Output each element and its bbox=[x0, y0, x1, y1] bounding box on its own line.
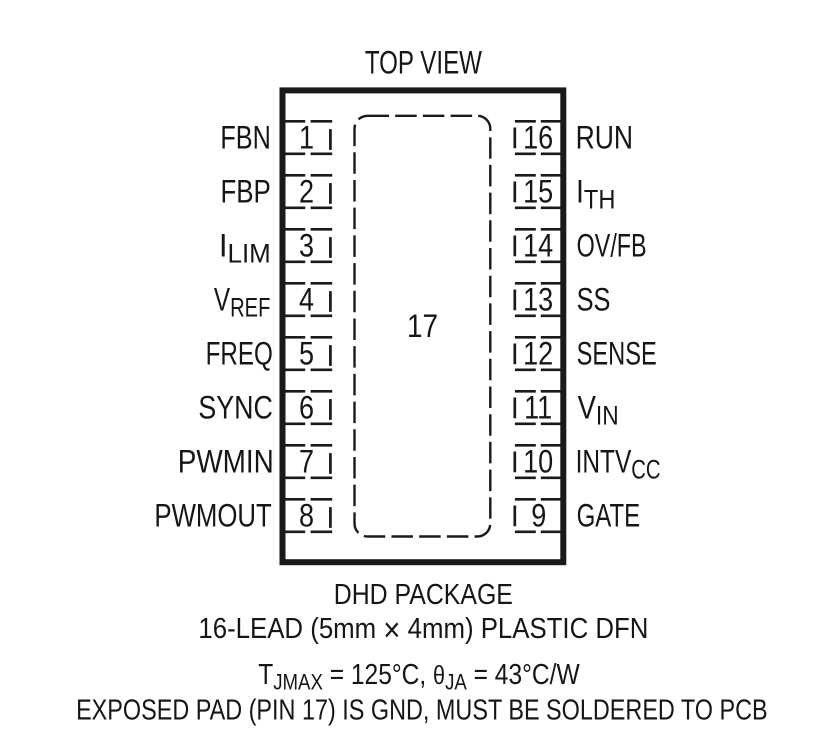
svg-text:EXPOSED PAD (PIN 17) IS GND, M: EXPOSED PAD (PIN 17) IS GND, MUST BE SOL… bbox=[76, 693, 768, 726]
svg-text:DHD PACKAGE: DHD PACKAGE bbox=[334, 578, 513, 610]
svg-text:13: 13 bbox=[523, 282, 553, 318]
svg-text:17: 17 bbox=[407, 309, 438, 344]
svg-text:RUN: RUN bbox=[576, 120, 633, 156]
svg-text:FBN: FBN bbox=[220, 121, 270, 157]
svg-text:TOP VIEW: TOP VIEW bbox=[365, 45, 482, 81]
svg-text:1: 1 bbox=[299, 120, 314, 156]
svg-text:GATE: GATE bbox=[577, 497, 641, 533]
svg-text:FREQ: FREQ bbox=[206, 336, 273, 372]
svg-text:6: 6 bbox=[299, 390, 314, 426]
svg-text:4: 4 bbox=[299, 282, 314, 318]
svg-text:3: 3 bbox=[299, 228, 314, 264]
svg-text:16-LEAD (5mm ×​ 4mm) PLASTIC D: 16-LEAD (5mm ×​ 4mm) PLASTIC DFN bbox=[198, 612, 648, 649]
svg-text:10: 10 bbox=[523, 444, 553, 480]
svg-text:SS: SS bbox=[577, 283, 611, 318]
svg-text:12: 12 bbox=[523, 336, 553, 372]
svg-text:8: 8 bbox=[299, 498, 314, 534]
svg-text:15: 15 bbox=[523, 174, 553, 210]
svg-text:5: 5 bbox=[299, 336, 314, 372]
svg-text:2: 2 bbox=[299, 174, 314, 210]
svg-text:7: 7 bbox=[299, 444, 314, 480]
svg-text:PWMOUT: PWMOUT bbox=[154, 499, 272, 534]
svg-text:9: 9 bbox=[531, 498, 546, 534]
svg-text:SYNC: SYNC bbox=[198, 390, 272, 426]
svg-text:FBP: FBP bbox=[221, 175, 271, 210]
svg-text:SENSE: SENSE bbox=[577, 336, 657, 371]
svg-text:PWMIN: PWMIN bbox=[178, 445, 274, 480]
svg-text:11: 11 bbox=[524, 390, 552, 426]
svg-text:16: 16 bbox=[523, 120, 553, 156]
svg-text:OV/FB: OV/FB bbox=[577, 228, 647, 263]
svg-text:14: 14 bbox=[523, 228, 553, 264]
